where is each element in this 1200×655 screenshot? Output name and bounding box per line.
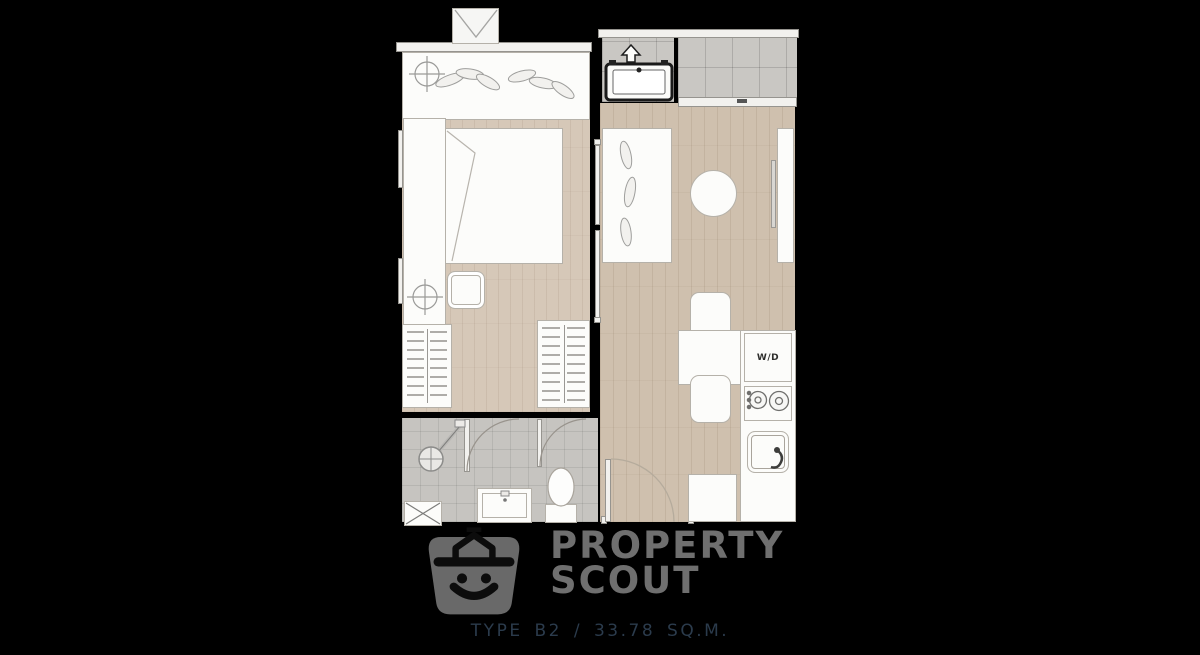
wardrobe-clothes [542,327,560,401]
tv-panel [771,160,776,228]
brand-text: PROPERTY SCOUT [550,528,784,598]
wardrobe-clothes [430,331,447,401]
unit-type-caption: TYPE B2 / 33.78 SQ.M. [0,621,1200,641]
watermark: PROPERTY SCOUT [415,524,835,624]
sliding-partition-panel-2 [595,230,600,318]
brand-line-1: PROPERTY [550,528,784,563]
ac-outdoor-unit [452,8,499,44]
console-desk [602,128,672,263]
wardrobe-clothes [407,331,424,401]
stove [744,386,792,421]
ac-niche-floor [602,38,674,102]
wall-shelf [402,52,590,120]
wardrobe-left [402,324,452,408]
toilet-tank [545,504,577,523]
entry-door-leaf [605,459,611,522]
floor-plan-image: W/D [0,0,1200,655]
sliding-partition-panel-1 [595,145,600,225]
round-table [690,170,737,217]
tv-console [777,128,794,263]
washer-dryer: W/D [744,333,792,382]
wardrobe-rail [564,325,565,403]
shower-glass-door [464,419,470,472]
wardrobe-middle [537,320,590,408]
wardrobe-rail [427,329,428,403]
side-counter [403,118,446,326]
refrigerator [688,474,737,522]
toilet-door-leaf [537,419,542,467]
bedside-table [447,271,485,309]
kitchen-sink [747,431,789,473]
bed [445,128,563,264]
balcony-floor [678,36,797,98]
dining-chair-bottom [690,375,731,423]
sliding-door-handle [737,99,747,103]
property-scout-logo-icon [418,526,530,618]
brand-line-2: SCOUT [550,563,784,598]
balcony-window [598,29,799,38]
wardrobe-clothes [567,327,585,401]
shaft [404,501,442,526]
washer-dryer-label: W/D [757,353,779,363]
vanity-sink [477,488,532,523]
